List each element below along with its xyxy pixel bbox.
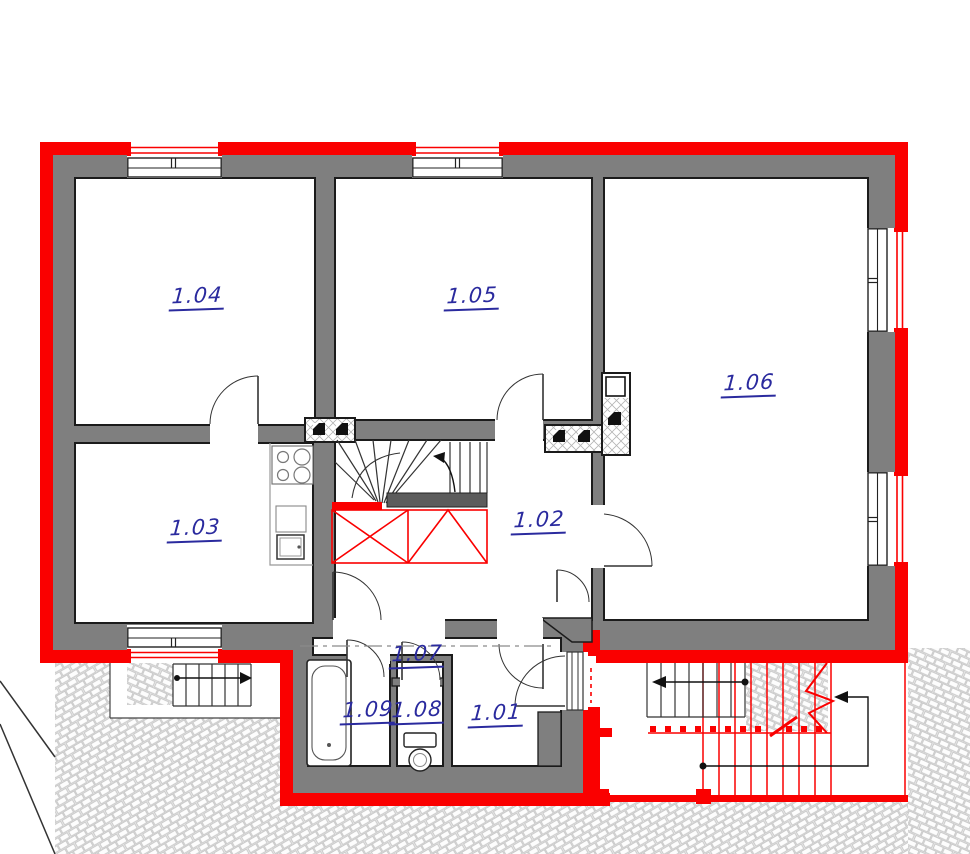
room-1-06 — [604, 178, 868, 620]
window-bottom-left — [127, 628, 222, 663]
room-label-1-08: 1.08 — [389, 697, 446, 726]
exterior-staircase-right — [591, 663, 908, 804]
room-label-1-02: 1.02 — [511, 507, 568, 536]
chimney-block-middle — [545, 425, 605, 452]
room-label-1-05: 1.05 — [444, 283, 501, 312]
window-top-left — [127, 142, 222, 177]
chimney-block-left — [305, 418, 355, 442]
chimney-vent-shaft — [602, 373, 630, 455]
exterior-staircase-left — [110, 662, 280, 718]
room-label-1-06: 1.06 — [721, 370, 778, 399]
room-label-1-04: 1.04 — [169, 283, 226, 312]
room-label-1-01: 1.01 — [468, 700, 525, 729]
stove-fixture — [272, 446, 313, 484]
room-label-1-09: 1.09 — [340, 697, 397, 726]
room-label-1-07: 1.07 — [389, 641, 446, 670]
site-boundary-lines — [0, 681, 55, 854]
floor-plan: 1.01 1.02 1.03 1.04 1.05 1.06 1.07 1.08 … — [0, 0, 970, 854]
window-top-middle — [412, 142, 503, 177]
old-stair-overlay — [647, 663, 745, 717]
room-label-1-03: 1.03 — [167, 515, 224, 544]
